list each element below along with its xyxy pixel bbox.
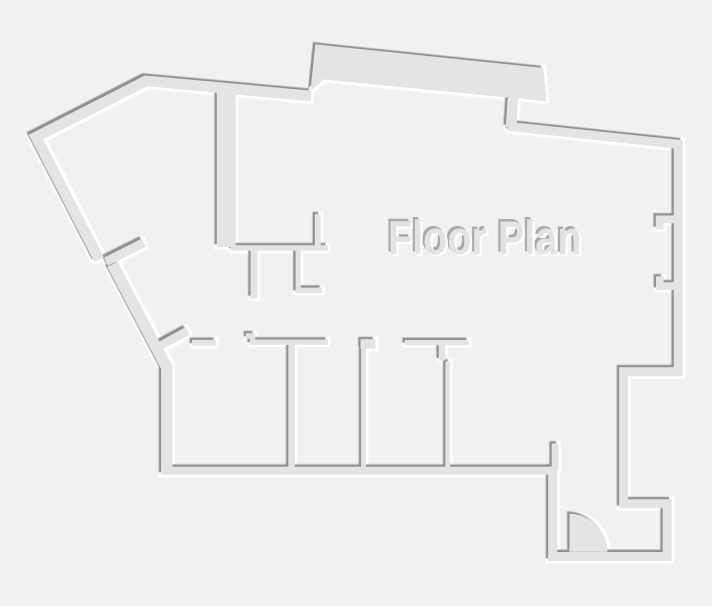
svg-text:Floor Plan: Floor Plan — [388, 212, 582, 265]
